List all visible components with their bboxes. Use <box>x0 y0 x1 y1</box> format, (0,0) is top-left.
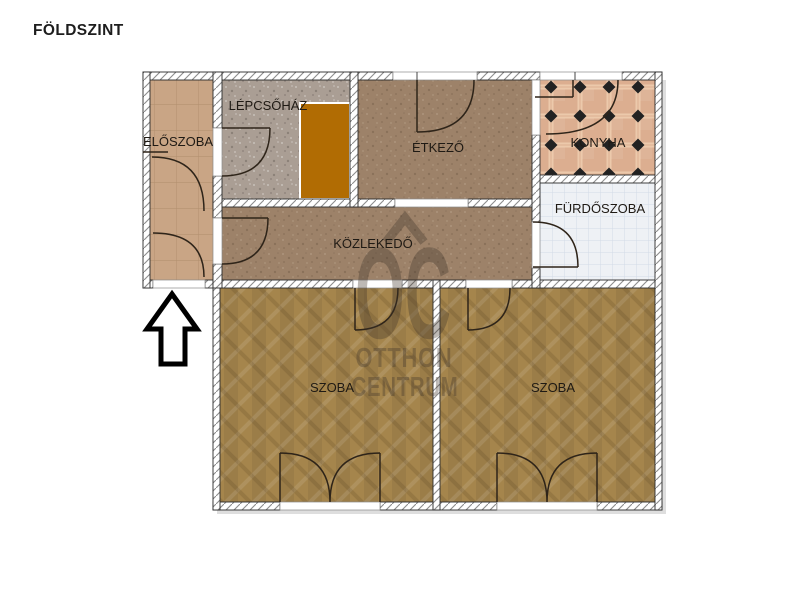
room-label-konyha: KONYHA <box>571 135 626 150</box>
window-etkezo <box>393 72 477 80</box>
room-floor-konyha <box>540 80 655 175</box>
opening-szoba-right <box>466 280 512 288</box>
watermark-line1: OTTHON <box>356 342 453 373</box>
opening-french-right <box>497 502 597 510</box>
room-label-szoba-right: SZOBA <box>531 380 575 395</box>
window-konyha <box>540 72 622 80</box>
room-floor-furdoszoba <box>540 183 655 280</box>
room-label-lepcsohaz: LÉPCSŐHÁZ <box>229 98 308 113</box>
opening-lepcsohaz <box>213 128 222 176</box>
opening-entrance <box>153 280 205 288</box>
opening-konyha <box>532 80 540 135</box>
watermark-line2: CENTRUM <box>352 371 459 402</box>
room-floor-eloszoba <box>150 80 213 280</box>
room-label-etkezo: ÉTKEZŐ <box>412 140 464 155</box>
room-floor-szoba-right <box>440 288 655 502</box>
room-label-eloszoba: ELŐSZOBA <box>143 134 213 149</box>
stairs-block <box>300 103 350 199</box>
floor-plan-image: OC OTTHON CENTRUM ELŐSZOBA LÉPCSŐHÁZ ÉTK… <box>0 0 800 606</box>
opening-french-left <box>280 502 380 510</box>
opening-furdoszoba <box>532 222 540 268</box>
opening-etkezo-kozlekedo <box>395 199 468 207</box>
floor-plan-page: FÖLDSZINT <box>0 0 800 606</box>
opening-kozlekedo <box>213 218 222 264</box>
entrance-arrow-icon <box>147 294 197 364</box>
room-label-szoba-left: SZOBA <box>310 380 354 395</box>
room-label-kozlekedo: KÖZLEKEDŐ <box>333 236 412 251</box>
room-label-furdoszoba: FÜRDŐSZOBA <box>555 201 646 216</box>
